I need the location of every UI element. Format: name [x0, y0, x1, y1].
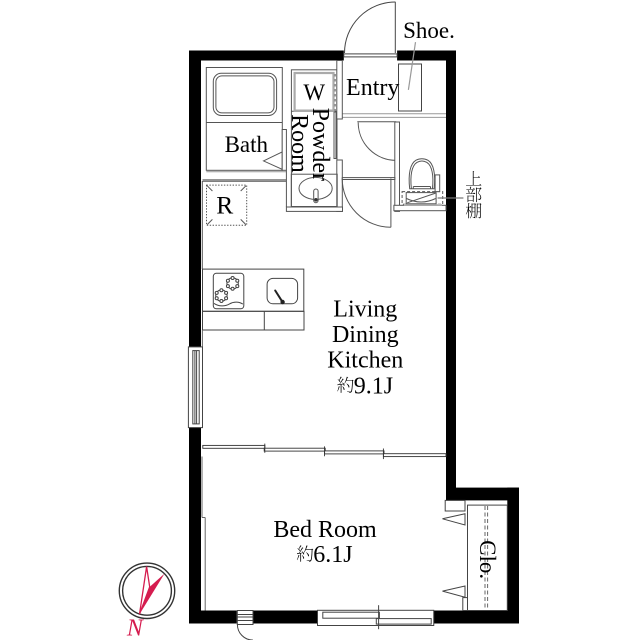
svg-text:N: N	[126, 615, 145, 640]
svg-text:R: R	[216, 190, 233, 219]
svg-text:9.1J: 9.1J	[354, 373, 393, 399]
svg-text:Shoe.: Shoe.	[403, 18, 455, 43]
svg-text:Bath: Bath	[225, 132, 269, 157]
svg-text:W: W	[303, 80, 325, 105]
svg-text:Kitchen: Kitchen	[327, 348, 403, 374]
svg-text:Bed Room: Bed Room	[273, 517, 377, 543]
svg-text:Clo.: Clo.	[475, 540, 500, 579]
svg-text:Dining: Dining	[332, 322, 399, 348]
svg-text:Entry: Entry	[346, 75, 399, 101]
svg-text:Living: Living	[333, 297, 397, 323]
svg-text:6.1J: 6.1J	[313, 542, 352, 568]
svg-text:Room: Room	[286, 114, 312, 173]
